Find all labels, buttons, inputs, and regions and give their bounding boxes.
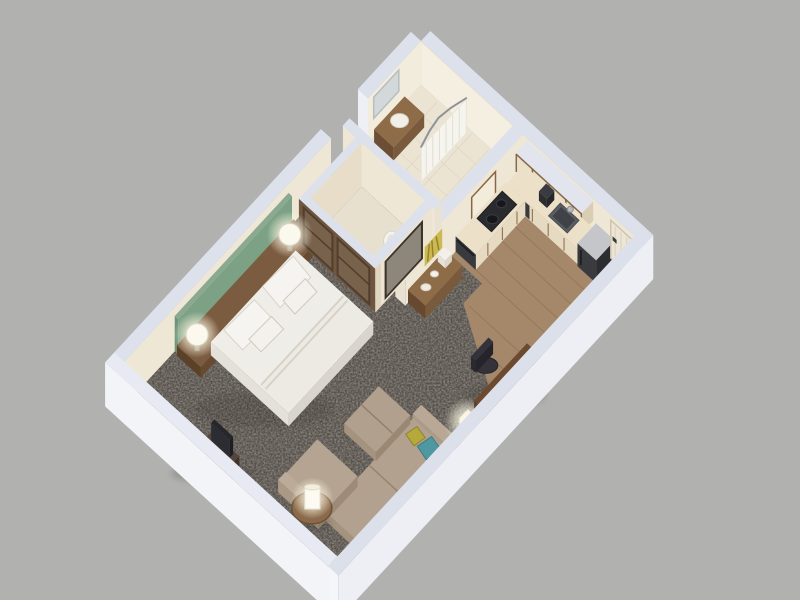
television-side-se [230,437,233,458]
studio-suite-isometric-render [0,0,800,600]
floorplan-stage [0,0,800,600]
nightstand-lamp-south [186,324,208,346]
console-cups [430,271,438,277]
nightstand-lamp-north [279,223,301,245]
console-tray [421,284,431,291]
vanity-sink [391,114,409,128]
closet-doors-wall-side-se [375,262,381,312]
cooktop-burner-rear [486,215,498,224]
sink-faucet [567,206,573,212]
cooktop-burner-front [496,200,506,208]
floor-lamp-cylinder-top [305,484,320,490]
artwork-strokes-1 [432,240,433,256]
